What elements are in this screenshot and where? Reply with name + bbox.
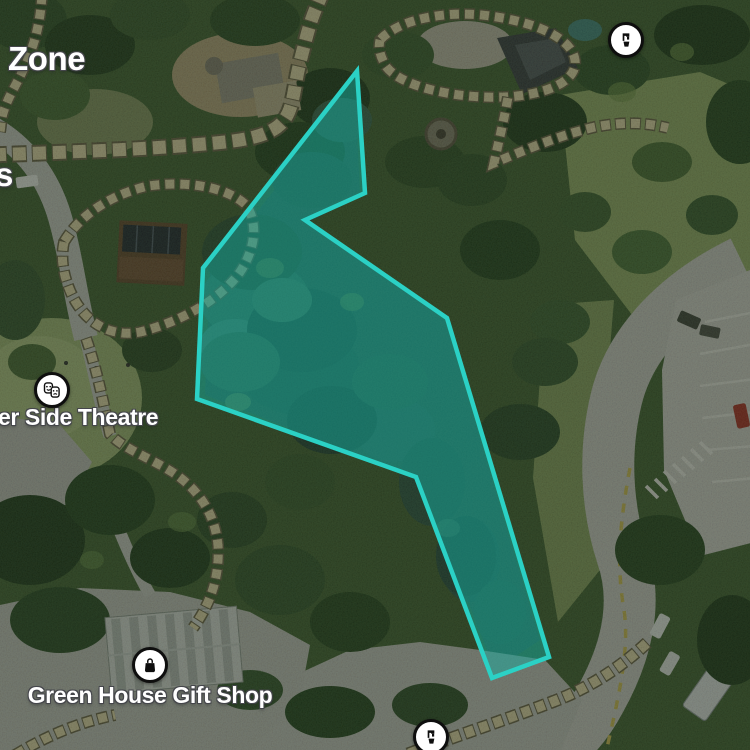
gift-shop-label: Green House Gift Shop: [28, 684, 273, 707]
theatre-masks-icon: [42, 380, 62, 400]
shopping-bag-icon: [140, 655, 160, 675]
poi-side-theatre[interactable]: [34, 372, 70, 408]
map-canvas[interactable]: Zone s er Side Theatre Green House Gift …: [0, 0, 750, 750]
poi-gift-shop[interactable]: [132, 647, 168, 683]
zone-label: Zone: [8, 42, 85, 75]
satellite-map: [0, 0, 750, 750]
poi-drinking-fountain-south[interactable]: [413, 719, 449, 750]
theatre-label: er Side Theatre: [0, 406, 158, 429]
edge-label-fragment: s: [0, 158, 13, 191]
drinking-fountain-icon: [616, 30, 636, 50]
drinking-fountain-icon: [421, 727, 441, 747]
poi-drinking-fountain-north[interactable]: [608, 22, 644, 58]
